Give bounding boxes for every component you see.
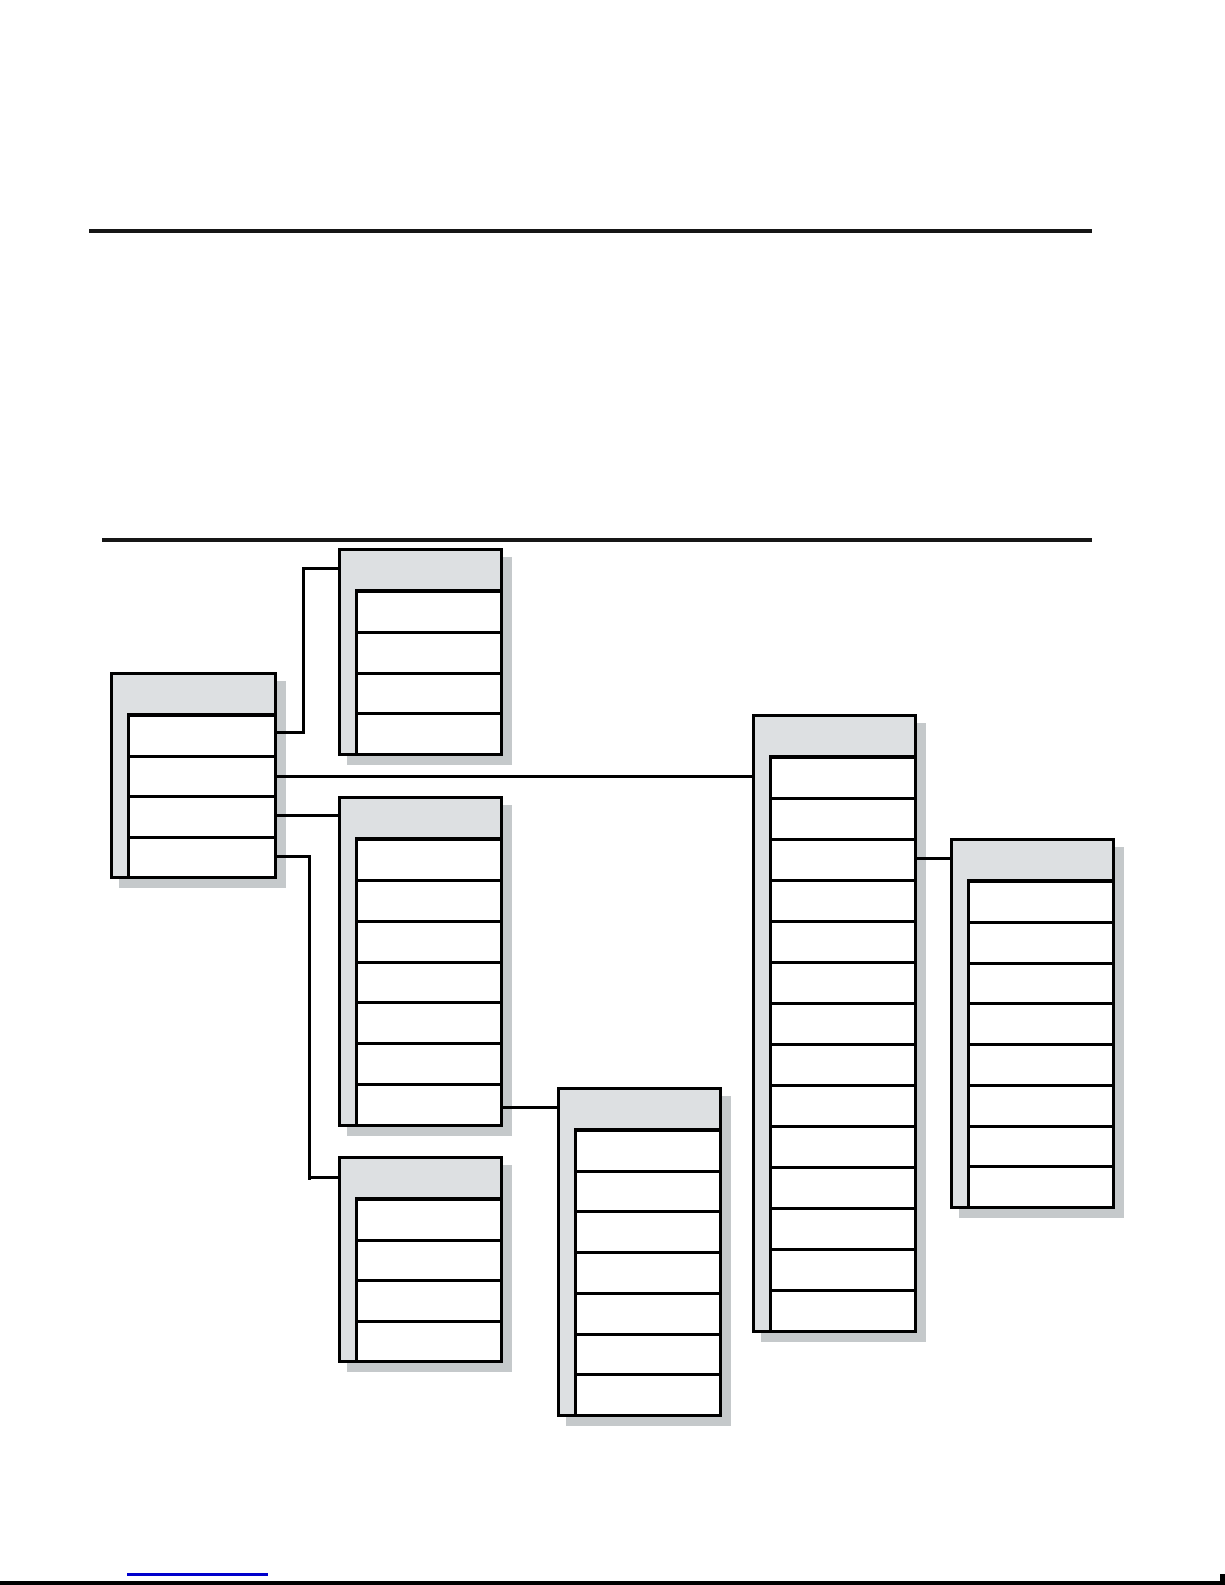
table-tall-right-row: [772, 920, 914, 961]
document-page: [0, 0, 1225, 1585]
table-tall-right-row: [772, 1289, 914, 1330]
page-bottom-edge: [0, 1581, 1225, 1585]
table-bottom-left-row: [358, 1279, 500, 1320]
table-top-middle-row: [358, 672, 500, 713]
table-bottom-left-row: [358, 1239, 500, 1280]
table-far-right-row: [970, 921, 1112, 962]
table-tall-right-row: [772, 1043, 914, 1084]
table-far-right-row: [970, 883, 1112, 921]
footer-link-underline[interactable]: [127, 1573, 268, 1576]
table-tall-right-row: [772, 838, 914, 879]
table-left-row: [130, 795, 274, 836]
table-bottom-middle-row: [577, 1210, 719, 1251]
table-far-right-row: [970, 1002, 1112, 1043]
table-middle-row: [358, 961, 500, 1002]
table-bottom-left: [338, 1156, 503, 1363]
table-bottom-middle-row: [577, 1333, 719, 1374]
section-rule-bottom: [102, 538, 1092, 542]
table-tall-right-row: [772, 961, 914, 1002]
table-middle-row: [358, 1083, 500, 1124]
table-tall-right-row: [772, 1207, 914, 1248]
table-left-row: [130, 717, 274, 755]
table-far-right: [950, 838, 1115, 1209]
page-corner-tick: [1220, 1574, 1225, 1585]
connector-left-to-top-middle: [302, 567, 338, 570]
table-tall-right-row: [772, 759, 914, 797]
connector-left-to-top-middle: [302, 567, 305, 734]
table-top-middle-row: [358, 631, 500, 672]
table-tall-right-row: [772, 879, 914, 920]
table-middle: [338, 796, 503, 1127]
table-bottom-left-row: [358, 1201, 500, 1239]
table-bottom-middle-row: [577, 1373, 719, 1414]
table-middle-row: [358, 879, 500, 920]
connector-left-to-top-middle: [277, 731, 305, 734]
table-bottom-middle-row: [577, 1170, 719, 1211]
table-tall-right-row: [772, 797, 914, 838]
table-middle-row: [358, 1001, 500, 1042]
table-far-right-row: [970, 1043, 1112, 1084]
table-top-middle-row: [358, 593, 500, 631]
table-middle-row: [358, 841, 500, 879]
section-rule-top: [89, 229, 1092, 233]
connector-tall-right-to-far-right: [917, 857, 950, 860]
table-bottom-middle: [557, 1087, 722, 1417]
table-far-right-row: [970, 1125, 1112, 1166]
connector-left-to-bottom-left: [308, 855, 311, 1180]
connector-left-to-middle: [277, 814, 338, 817]
table-tall-right-field-rows: [769, 755, 914, 1330]
table-tall-right-row: [772, 1248, 914, 1289]
table-tall-right-row: [772, 1125, 914, 1166]
table-middle-row: [358, 920, 500, 961]
table-top-middle-row: [358, 712, 500, 753]
table-middle-field-rows: [355, 837, 500, 1124]
table-far-right-row: [970, 1165, 1112, 1206]
table-relationship-diagram: [0, 0, 1225, 1585]
table-far-right-row: [970, 962, 1112, 1003]
table-far-right-field-rows: [967, 879, 1112, 1206]
table-bottom-left-row: [358, 1320, 500, 1361]
table-middle-row: [358, 1042, 500, 1083]
table-tall-right-row: [772, 1166, 914, 1207]
table-tall-right-row: [772, 1002, 914, 1043]
table-top-middle-field-rows: [355, 589, 500, 753]
table-bottom-middle-row: [577, 1292, 719, 1333]
table-left-row: [130, 836, 274, 877]
connector-middle-to-bottom-middle: [503, 1106, 557, 1109]
connector-left-to-bottom-left: [308, 1176, 338, 1179]
table-top-middle: [338, 548, 503, 756]
table-bottom-middle-row: [577, 1251, 719, 1292]
connector-left-to-bottom-left: [277, 855, 311, 858]
table-tall-right: [752, 714, 917, 1333]
table-bottom-middle-field-rows: [574, 1128, 719, 1414]
table-far-right-row: [970, 1084, 1112, 1125]
table-tall-right-row: [772, 1084, 914, 1125]
table-left-field-rows: [127, 713, 274, 876]
table-left-row: [130, 755, 274, 796]
table-bottom-left-field-rows: [355, 1197, 500, 1360]
connector-left-to-tall-right: [277, 775, 752, 778]
table-bottom-middle-row: [577, 1132, 719, 1170]
table-left: [110, 672, 277, 879]
